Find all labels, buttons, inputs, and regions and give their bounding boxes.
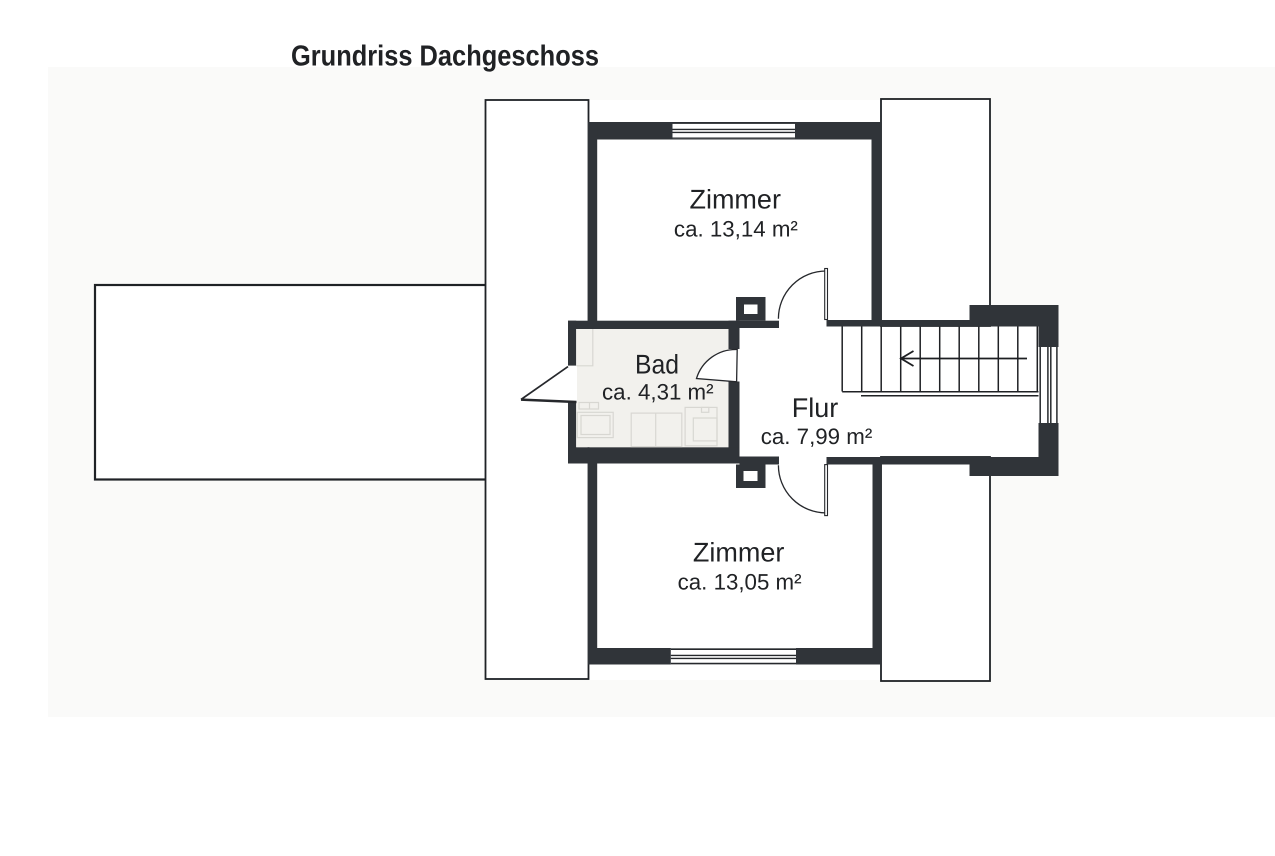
svg-text:ca. 13,14 m²: ca. 13,14 m²: [674, 217, 798, 242]
svg-text:Zimmer: Zimmer: [689, 185, 780, 215]
svg-text:Grundriss Dachgeschoss: Grundriss Dachgeschoss: [291, 41, 599, 73]
svg-text:Flur: Flur: [792, 393, 839, 423]
svg-text:Bad: Bad: [635, 350, 679, 380]
svg-text:ca. 13,05 m²: ca. 13,05 m²: [678, 569, 802, 594]
svg-text:Zimmer: Zimmer: [693, 537, 784, 567]
svg-text:ca. 7,99 m²: ca. 7,99 m²: [761, 424, 873, 449]
svg-text:ca. 4,31 m²: ca. 4,31 m²: [602, 380, 714, 405]
